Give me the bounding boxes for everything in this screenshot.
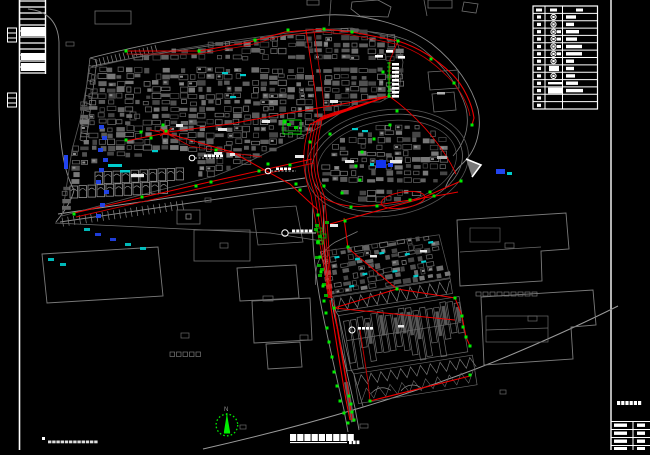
svg-text:N: N xyxy=(224,407,228,413)
